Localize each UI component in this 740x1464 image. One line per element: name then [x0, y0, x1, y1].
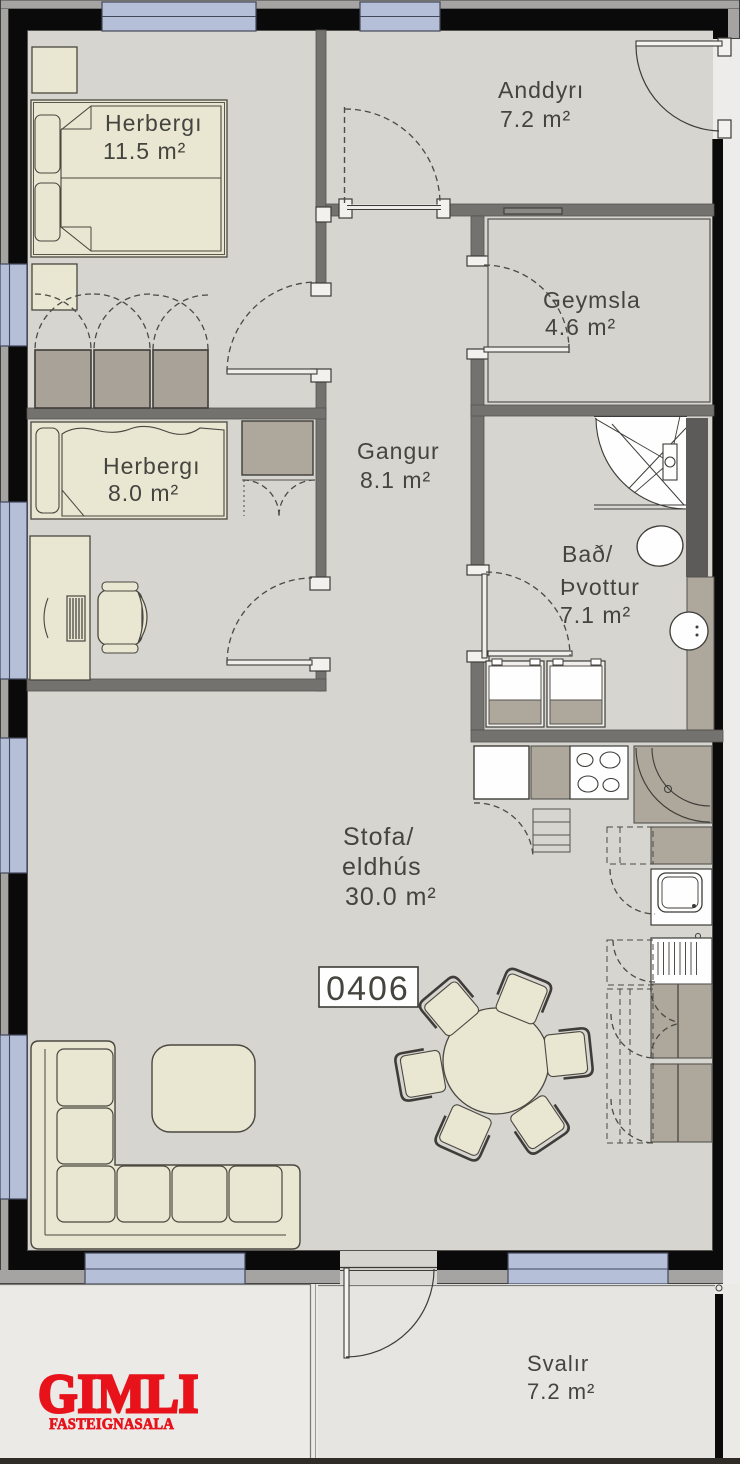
svg-text:11.5 m²: 11.5 m²: [103, 138, 186, 164]
svg-text:7.2 m²: 7.2 m²: [527, 1379, 595, 1404]
svg-text:30.0 m²: 30.0 m²: [345, 883, 437, 911]
svg-text:7.1 m²: 7.1 m²: [560, 602, 631, 628]
svg-text:Bað/: Bað/: [562, 541, 613, 567]
svg-text:Anddyrı: Anddyrı: [498, 77, 584, 103]
svg-text:Þvottur: Þvottur: [560, 574, 640, 600]
svg-text:8.1 m²: 8.1 m²: [360, 467, 431, 493]
svg-text:7.2 m²: 7.2 m²: [500, 106, 571, 132]
svg-text:0406: 0406: [326, 970, 410, 1008]
svg-text:Gangur: Gangur: [357, 438, 440, 464]
svg-text:Herbergı: Herbergı: [105, 110, 202, 136]
svg-text:Svalır: Svalır: [527, 1351, 589, 1376]
svg-text:Herbergı: Herbergı: [103, 453, 200, 479]
svg-text:8.0 m²: 8.0 m²: [108, 480, 179, 506]
svg-text:eldhús: eldhús: [342, 853, 422, 881]
svg-text:FASTEIGNASALA: FASTEIGNASALA: [49, 1415, 174, 1433]
svg-text:Stofa/: Stofa/: [343, 823, 414, 851]
svg-text:4.6 m²: 4.6 m²: [545, 314, 616, 340]
svg-text:Geymsla: Geymsla: [543, 287, 641, 313]
